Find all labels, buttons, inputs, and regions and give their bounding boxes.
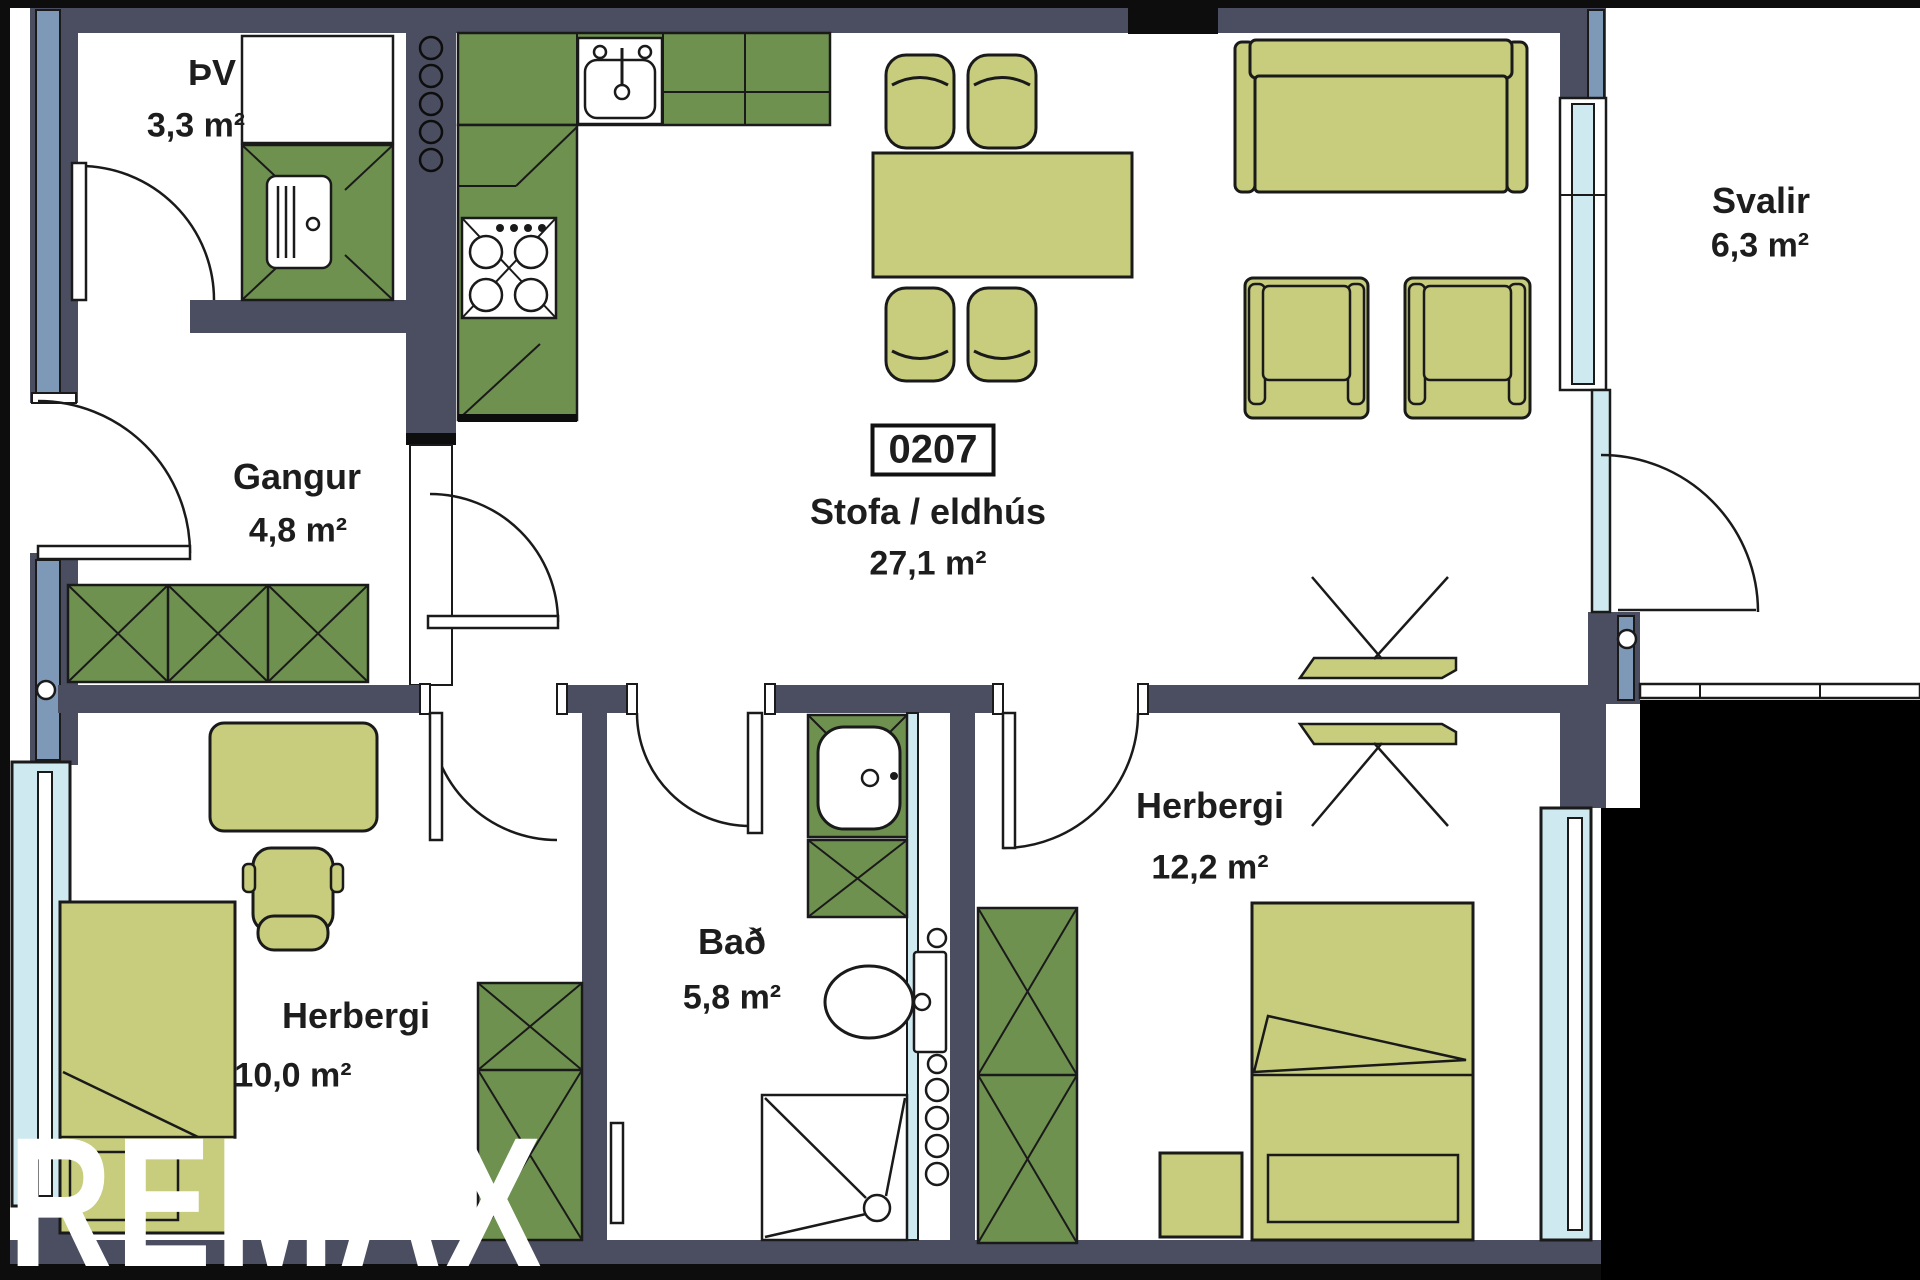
room-area-gangur: 4,8 m² [249,512,347,551]
room-area-herbergi2: 12,2 m² [1151,849,1268,888]
balcony-stub-glazing [1618,616,1634,700]
black-region-strip [1601,808,1640,1280]
stove-icon [462,218,556,318]
left-edge-black [0,0,10,1280]
door-jamb [557,684,567,714]
kitchen-sink-icon [578,38,662,124]
bathroom-door [637,713,762,833]
desk-chair [243,848,343,950]
room-label-gangur: Gangur [233,456,361,498]
sofa [1235,40,1527,192]
black-region [1640,700,1920,1280]
door-jamb [993,684,1003,714]
laundry-appliances [242,36,393,300]
room-area-bad: 5,8 m² [683,979,781,1018]
pipe-vent-icon [420,37,442,171]
masked-area [1601,684,1920,1280]
top-edge-black [10,0,1920,8]
unit-number-badge: 0207 [871,424,996,477]
door-knob-icon [37,681,55,699]
bath-bedroom2-wall [950,713,975,1240]
balcony-door [1592,390,1758,612]
balcony-door-knob-icon [1618,630,1636,648]
wardrobe [978,908,1077,1243]
bedroom1-door [430,713,557,840]
door-jamb [765,684,775,714]
door-jamb [420,684,430,714]
top-wall [30,8,1562,33]
bedroom2-door [1003,713,1138,848]
bathroom-sink-icon [808,715,907,837]
armchair [1405,278,1530,418]
bedroom2-window [1541,808,1591,1240]
bath-wall-right [775,685,1003,713]
bed [1252,903,1473,1240]
hall-wardrobe [68,585,368,682]
desk [210,723,377,831]
nightstand [1160,1153,1242,1237]
dryer-icon [242,36,393,143]
bedroom1-bath-wall [582,713,607,1240]
room-label-stofa: Stofa / eldhús [810,491,1046,533]
dining-table [873,153,1132,277]
room-area-pv: 3,3 m² [147,107,245,146]
armchair [1245,278,1368,418]
bathroom-cabinet [808,840,907,917]
door-jamb [410,445,452,685]
balcony-railing [1640,684,1920,698]
room-label-svalir: Svalir [1712,180,1810,222]
right-wall-mid [1560,704,1606,808]
top-wall-column [1128,0,1218,34]
dining-chair [968,55,1036,148]
dining-chair [886,55,954,148]
pv-gangur-wall [190,300,456,333]
folding-rack-icon [1300,577,1456,678]
wall-end-cap [406,433,456,445]
entrance-door [32,393,190,559]
room-label-herbergi1: Herbergi [282,995,430,1037]
hall-bedroom1-wall [58,685,430,713]
dining-chair [886,288,954,381]
folding-rack-icon [1300,724,1456,826]
remax-watermark: REMAX [8,1111,545,1280]
floor-plan: ÞV 3,3 m² Gangur 4,8 m² 0207 Stofa / eld… [0,0,1920,1280]
washing-machine-icon [242,145,393,300]
shower-icon [762,1095,907,1240]
stofa-bedroom2-wall [1148,685,1588,713]
room-label-pv: ÞV [188,52,236,94]
room-area-stofa: 27,1 m² [869,545,986,584]
left-wall-glazing-2 [36,560,60,760]
door-jamb [1138,684,1148,714]
dining-chair [968,288,1036,381]
door-jamb [627,684,637,714]
livingroom-window-glass [1572,104,1594,384]
room-label-bad: Bað [698,921,766,963]
room-label-herbergi2: Herbergi [1136,785,1284,827]
room-area-svalir: 6,3 m² [1711,227,1809,266]
shower-screen [611,1123,623,1223]
bedroom2-window-frame [1568,818,1582,1230]
room-area-herbergi1: 10,0 m² [234,1057,351,1096]
toilet-icon [825,929,946,1052]
laundry-door [72,163,214,300]
left-wall-glazing [36,10,60,400]
balcony-wall-glazing [1588,10,1604,98]
radiator-icon [926,1055,948,1185]
